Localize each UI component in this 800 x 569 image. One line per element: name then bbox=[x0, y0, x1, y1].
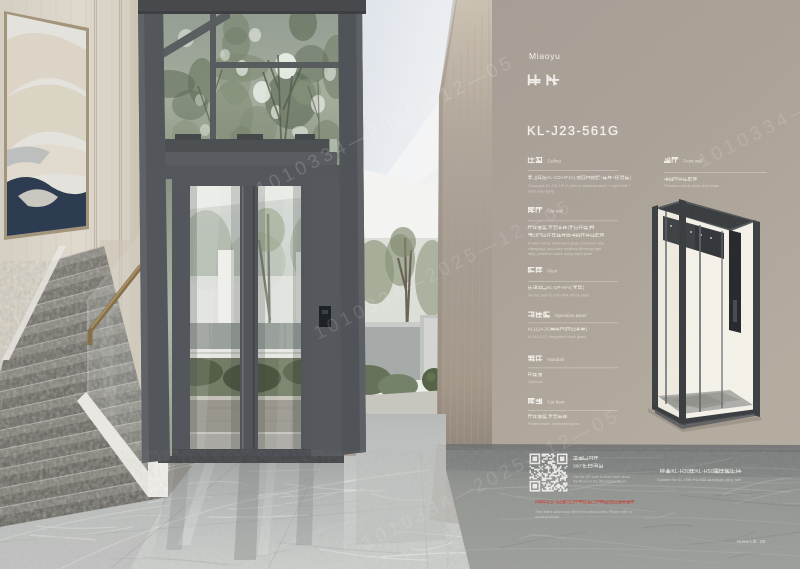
svg-text:KL-H30: KL-H30 bbox=[671, 469, 689, 475]
svg-text:strip, phantom black spray ste: strip, phantom black spray steel plate bbox=[528, 251, 592, 256]
svg-text:Profile frame, laminated glass: Profile frame, laminated glass bbox=[528, 421, 579, 426]
svg-text:Car door: Car door bbox=[547, 400, 565, 405]
svg-text:KL-H50: KL-H50 bbox=[695, 469, 713, 475]
svg-text:Phantom black spray steel plat: Phantom black spray steel plate bbox=[664, 183, 719, 188]
svg-text:Car wall: Car wall bbox=[547, 209, 563, 214]
svg-text:,: , bbox=[547, 225, 548, 230]
svg-text:They listed colors may differ: They listed colors may differ from actua… bbox=[535, 510, 632, 514]
svg-text:,: , bbox=[547, 414, 548, 419]
svg-text:Vantes ash KL-DP-HF4 (Rock sla: Vantes ash KL-DP-HF4 (Rock slab) bbox=[528, 292, 590, 297]
svg-text:Home Lift . 28: Home Lift . 28 bbox=[737, 539, 766, 544]
svg-text:KL1114-2C Integrated black gla: KL1114-2C Integrated black glass bbox=[528, 334, 586, 339]
svg-text:Suitable for KL-H30, KL-H50 al: Suitable for KL-H30, KL-H50 aluminum all… bbox=[657, 477, 741, 482]
svg-text:Ceiling: Ceiling bbox=[547, 159, 561, 164]
svg-text:KL-DP-HF4(: KL-DP-HF4( bbox=[547, 285, 572, 290]
svg-text:Front wall: Front wall bbox=[683, 159, 702, 164]
svg-text:actual products.: actual products. bbox=[535, 515, 560, 519]
svg-text:360°: 360° bbox=[573, 463, 583, 469]
svg-text:Miaoyu: Miaoyu bbox=[529, 51, 561, 61]
svg-text:KL-J23-561G: KL-J23-561G bbox=[527, 123, 620, 138]
svg-text:KL-CD-HF1A(: KL-CD-HF1A( bbox=[547, 175, 576, 180]
svg-text:Floor: Floor bbox=[547, 269, 558, 274]
svg-text:Handrail: Handrail bbox=[547, 357, 563, 362]
svg-text:+: + bbox=[600, 175, 603, 180]
svg-text:Optional: Optional bbox=[528, 379, 543, 384]
svg-text:Operation panel: Operation panel bbox=[555, 313, 586, 318]
svg-text:KL1114-2C: KL1114-2C bbox=[528, 327, 551, 332]
svg-text:Use the QR code to know more a: Use the QR code to know more about bbox=[573, 475, 630, 479]
svg-text:bull's Eye light): bull's Eye light) bbox=[528, 188, 555, 193]
svg-text:the lift use in the 360 degree: the lift use in the 360 degree layout bbox=[573, 480, 626, 484]
svg-text:+: + bbox=[613, 175, 616, 180]
